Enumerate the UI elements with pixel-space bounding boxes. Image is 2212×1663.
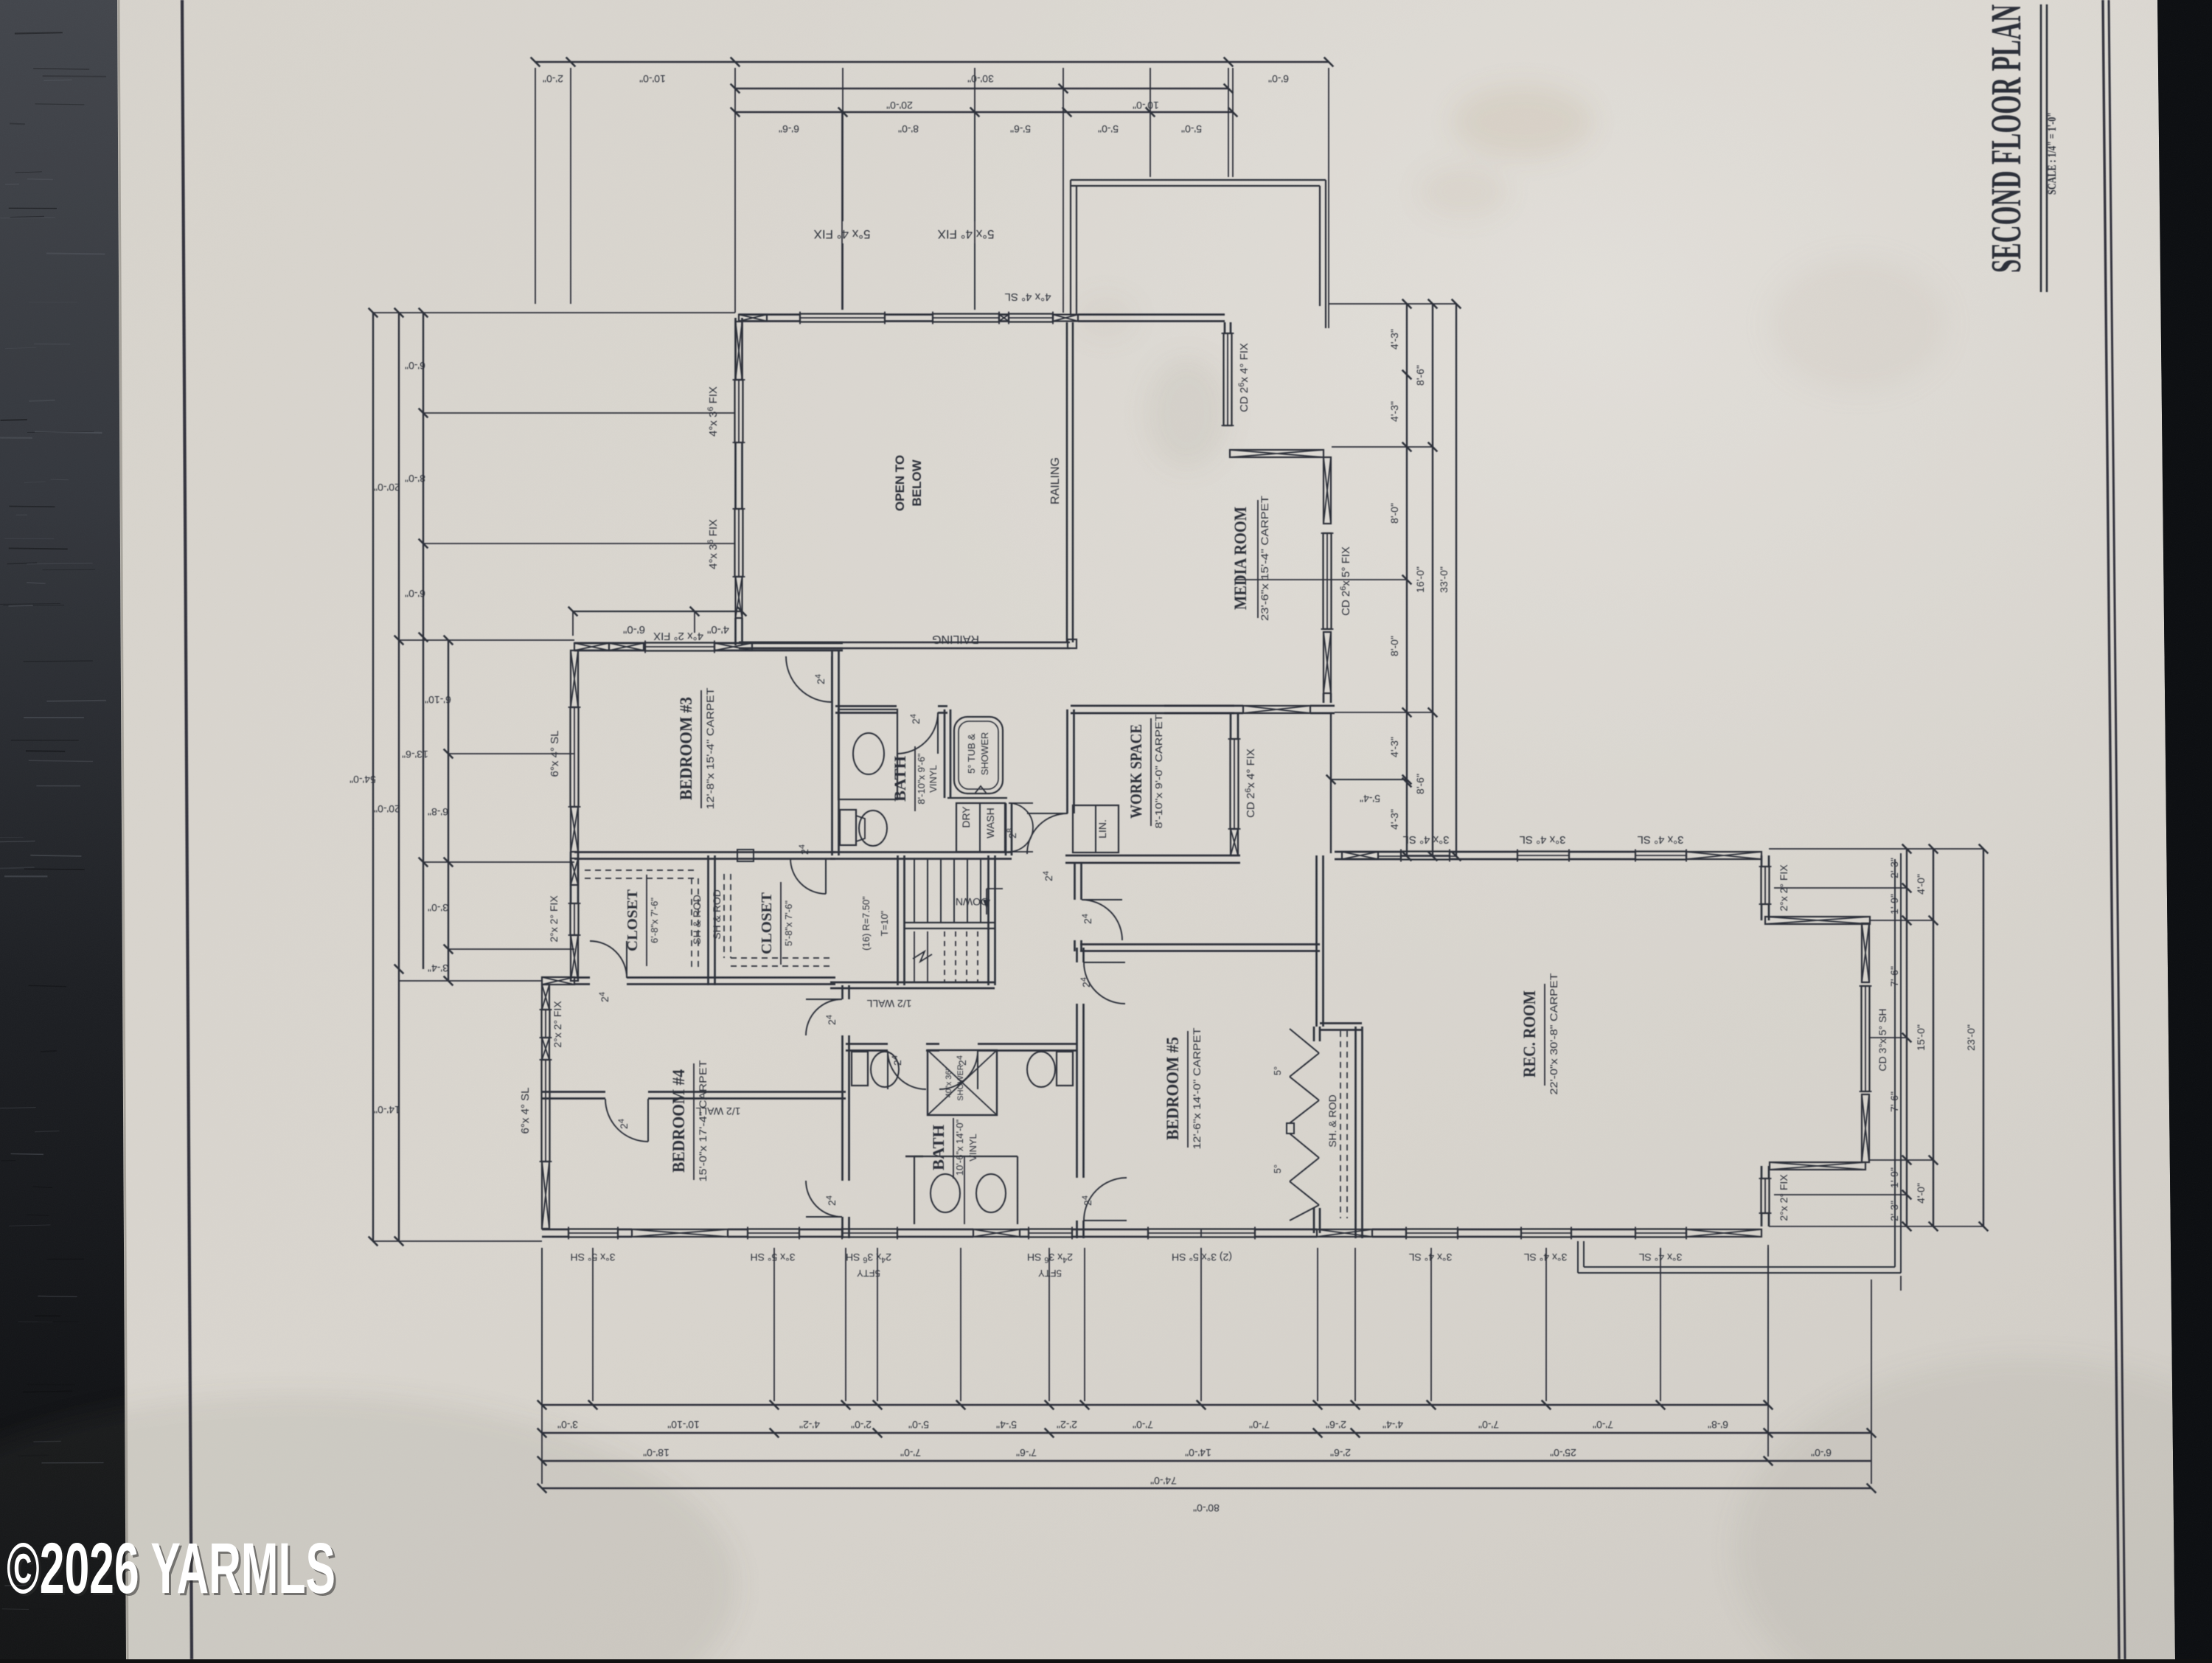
svg-text:©2026 YARMLS: ©2026 YARMLS — [7, 1528, 335, 1608]
